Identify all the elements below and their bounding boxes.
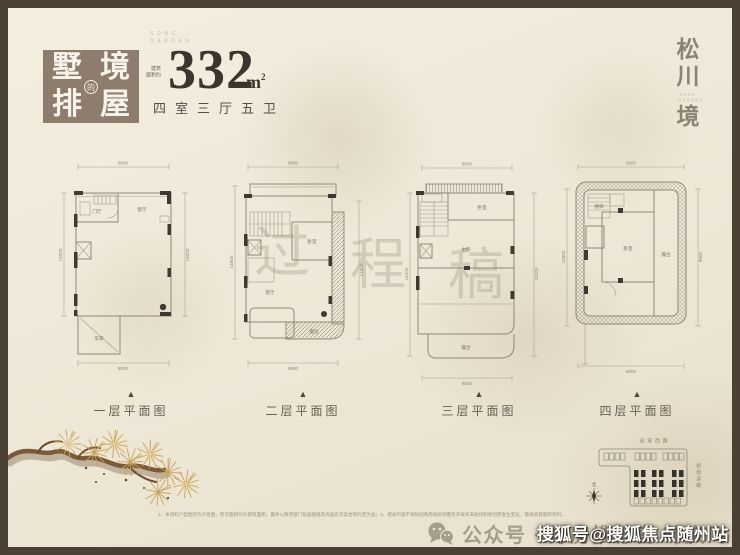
- dim-label: 8800: [462, 162, 473, 167]
- logo-char: 川: [668, 63, 708, 90]
- dim-label: 8800: [118, 161, 129, 166]
- dim-label: 14900: [229, 255, 234, 268]
- title-badge: 墅 境 排 屋 的: [43, 50, 139, 123]
- compass-label: 北: [592, 481, 597, 488]
- plan-caption-text: 二层平面图: [228, 402, 378, 419]
- north-triangle-icon: ▲: [228, 390, 378, 399]
- floorplan-1-drawing: 8800 15000 15000 8800: [56, 156, 206, 396]
- dim-label: 8800: [626, 369, 637, 374]
- floorplan-poster: 墅 境 排 屋 的 SONG GARDEN 建筑 面积约 332 m2 四室三厅…: [0, 0, 740, 555]
- room-label: 主卧: [461, 246, 471, 253]
- area-unit-sup: 2: [261, 72, 266, 82]
- badge-char: 屋: [100, 90, 130, 120]
- room-label: 卧室: [477, 204, 487, 211]
- brand-line: SONG: [150, 31, 179, 37]
- floorplan-level-1: 8800 15000 15000 8800: [56, 156, 206, 428]
- floorplan-level-4: 8800 15000 8800 8800: [562, 156, 712, 428]
- room-label: 车库: [94, 335, 104, 342]
- room-label: 卧室: [307, 238, 317, 245]
- dim-label: 8800: [288, 161, 299, 166]
- floorplan-3-drawing: 8800 14200 14200 8800: [404, 156, 554, 396]
- room-label: 客厅: [265, 289, 275, 296]
- room-label: 楼梯: [594, 203, 604, 210]
- dim-label: 8800: [626, 161, 637, 166]
- dim-label: 8800: [118, 366, 129, 371]
- plan-caption-text: 三层平面图: [404, 402, 554, 419]
- logo-subtitle: SONGGARDEN: [678, 92, 698, 97]
- room-label: 门厅: [92, 208, 102, 215]
- floorplan-4-drawing: 8800 15000 8800 8800: [562, 156, 717, 396]
- rooms-summary: 四室三厅五卫: [153, 98, 285, 117]
- badge-char: 墅: [52, 53, 82, 83]
- dim-label: 15000: [562, 250, 566, 263]
- dim-label: 8800: [698, 251, 703, 262]
- dim-label: 14200: [404, 267, 409, 280]
- compass-icon: 北: [586, 481, 602, 504]
- plan-caption-text: 四层平面图: [562, 402, 712, 419]
- dim-label: 15000: [58, 248, 63, 261]
- badge-char: 境: [100, 53, 130, 83]
- floorplan-2-drawing: 8800 14900 14900 8800: [228, 156, 378, 396]
- plan-caption: ▲ 二层平面图: [228, 390, 378, 419]
- logo-char: 松: [668, 36, 708, 63]
- plan-caption: ▲ 三层平面图: [404, 390, 554, 419]
- area-prefix: 建筑 面积约: [146, 66, 161, 79]
- north-triangle-icon: ▲: [404, 390, 554, 399]
- dim-label: 14900: [359, 263, 364, 276]
- badge-char: 排: [52, 90, 82, 120]
- plan-caption: ▲ 四层平面图: [562, 390, 712, 419]
- area-value: 332: [168, 42, 255, 98]
- area-unit: m2: [246, 72, 266, 93]
- floorplan-level-2: 8800 14900 14900 8800: [228, 156, 378, 428]
- room-label: 客厅: [137, 206, 147, 213]
- room-label: 卧室: [623, 245, 633, 252]
- area-prefix-line: 面积约: [146, 72, 161, 78]
- project-logo: 松 川 SONGGARDEN 境: [668, 36, 708, 130]
- wechat-icon: [426, 521, 456, 547]
- room-label: 露台: [309, 328, 319, 335]
- area-unit-base: m: [246, 72, 261, 92]
- dim-label: 14200: [534, 267, 539, 280]
- north-triangle-icon: ▲: [562, 390, 712, 399]
- floorplan-level-3: 8800 14200 14200 8800: [404, 156, 554, 428]
- dim-label: 15000: [185, 248, 190, 261]
- room-label: 露台: [661, 251, 671, 258]
- room-label: 露台: [461, 344, 471, 351]
- sohu-watermark: 搜狐号@搜狐焦点随州站: [537, 520, 729, 545]
- pine-branch-illustration: [8, 402, 218, 555]
- north-triangle-icon: ▲: [56, 390, 206, 399]
- dim-label: 8800: [462, 381, 473, 386]
- logo-char: 境: [668, 103, 708, 130]
- badge-circle-char: 的: [84, 80, 98, 94]
- area-prefix-line: 建筑: [151, 66, 161, 72]
- dim-label: 8800: [288, 366, 299, 371]
